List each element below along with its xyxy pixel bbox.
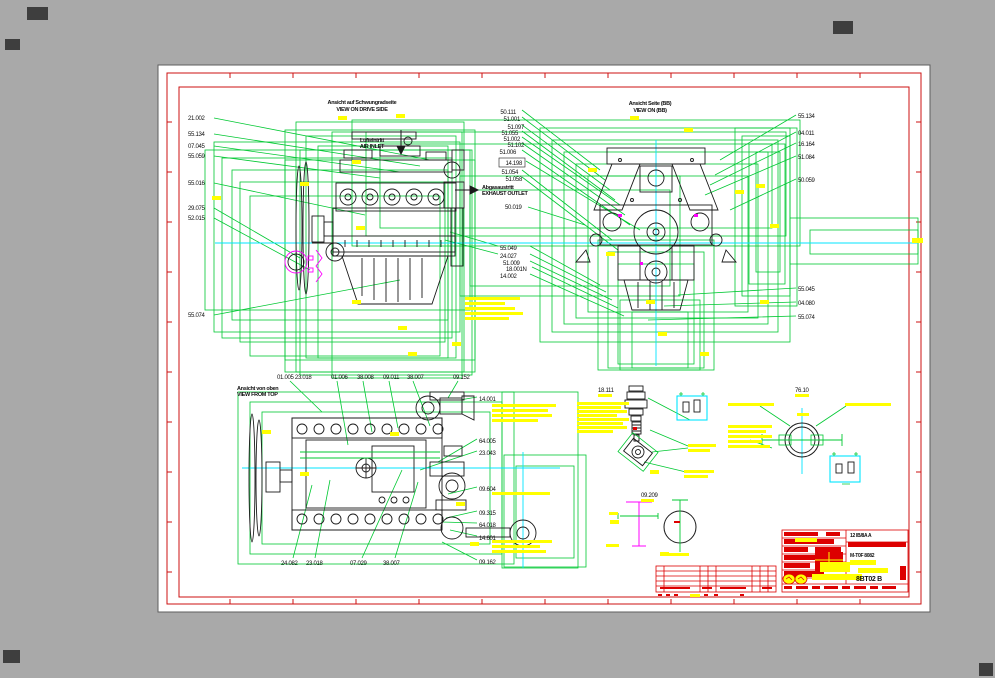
part-label: 50.059 bbox=[798, 178, 816, 184]
part-label: 23.043 bbox=[479, 451, 497, 457]
part-label: 18.001N bbox=[506, 267, 527, 273]
part-label: 64.018 bbox=[479, 523, 497, 529]
part-label: 14.002 bbox=[500, 274, 518, 280]
caption-en: VIEW ON (BB) bbox=[633, 108, 667, 114]
part-label: 38.008 bbox=[357, 375, 375, 381]
part-label: 01.006 bbox=[331, 375, 349, 381]
caption-de: Ansicht auf Schwungradseite bbox=[328, 100, 397, 106]
part-label: 29.075 bbox=[188, 206, 206, 212]
detail-label-flange: 76.10 bbox=[795, 388, 809, 394]
part-label: 51.102 bbox=[507, 143, 525, 149]
part-label: 38.007 bbox=[383, 561, 401, 567]
caption-de: Ansicht Seite (BB) bbox=[629, 101, 672, 107]
part-label: 23.018 bbox=[306, 561, 324, 567]
part-label: 09.315 bbox=[479, 511, 497, 517]
caption-en: VIEW FROM TOP bbox=[237, 392, 278, 398]
part-label: 09.152 bbox=[453, 375, 471, 381]
view-flywheel-side-title: Ansicht auf Schwungradseite VIEW ON DRIV… bbox=[328, 100, 397, 113]
part-label: 55.134 bbox=[188, 132, 206, 138]
part-label: 24.082 bbox=[281, 561, 299, 567]
cad-drawing: 12 IB/8A A M-T0F 8082 8BT02 B Ansicht au… bbox=[0, 0, 995, 678]
air-inlet-en: AIR INLET bbox=[360, 144, 385, 150]
part-label: 04.011 bbox=[798, 131, 815, 137]
sensor-red-mark bbox=[633, 427, 637, 430]
part-label: 55.074 bbox=[188, 313, 206, 319]
part-label: 55.016 bbox=[188, 181, 206, 187]
part-label: 14.001 bbox=[479, 397, 497, 403]
part-label: 51.054 bbox=[501, 170, 519, 176]
part-label: 50.019 bbox=[505, 205, 523, 211]
part-label: 09.162 bbox=[479, 560, 497, 566]
part-label: 51.006 bbox=[499, 150, 517, 156]
part-label: 38.007 bbox=[407, 375, 425, 381]
title-block-drawing-number: 8BT02 B bbox=[856, 576, 882, 583]
part-label: 51.084 bbox=[798, 155, 816, 161]
part-label: 51.001 bbox=[503, 117, 521, 123]
cad-viewer-window: 12 IB/8A A M-T0F 8082 8BT02 B Ansicht au… bbox=[0, 0, 995, 678]
part-label: 14.198 bbox=[505, 161, 523, 167]
title-block-type: M-T0F 8082 bbox=[850, 553, 875, 559]
detail-label-sensor: 18.111 bbox=[598, 388, 615, 394]
part-label: 01.005 23.018 bbox=[277, 375, 312, 381]
part-label: 14.601 bbox=[479, 536, 497, 542]
part-label: 51.058 bbox=[505, 177, 523, 183]
part-label: 55.074 bbox=[798, 315, 816, 321]
part-label: 09.011 bbox=[383, 375, 400, 381]
part-label: 07.029 bbox=[350, 561, 368, 567]
part-label: 21.002 bbox=[188, 116, 206, 122]
part-label: 55.049 bbox=[500, 246, 518, 252]
view-front-title: Ansicht Seite (BB) VIEW ON (BB) bbox=[629, 101, 672, 114]
part-label: 50.111 bbox=[500, 110, 517, 116]
part-label: 55.134 bbox=[798, 114, 816, 120]
title-block-revision: 12 IB/8A A bbox=[850, 533, 872, 539]
part-label: 55.045 bbox=[798, 287, 816, 293]
part-label: 16.164 bbox=[798, 142, 816, 148]
part-label: 52.015 bbox=[188, 216, 206, 222]
part-label: 64.005 bbox=[479, 439, 497, 445]
detail-label-bracket: 09.209 bbox=[641, 493, 659, 499]
part-label: 24.027 bbox=[500, 254, 518, 260]
view-top-title: Ansicht von oben VIEW FROM TOP bbox=[237, 386, 279, 398]
caption-en: VIEW ON DRIVE SIDE bbox=[336, 107, 388, 113]
part-label: 55.059 bbox=[188, 154, 206, 160]
exhaust-en: EXHAUST OUTLET bbox=[482, 191, 529, 197]
part-label: 04.080 bbox=[798, 301, 816, 307]
part-label: 07.045 bbox=[188, 144, 206, 150]
part-label: 09.604 bbox=[479, 487, 497, 493]
